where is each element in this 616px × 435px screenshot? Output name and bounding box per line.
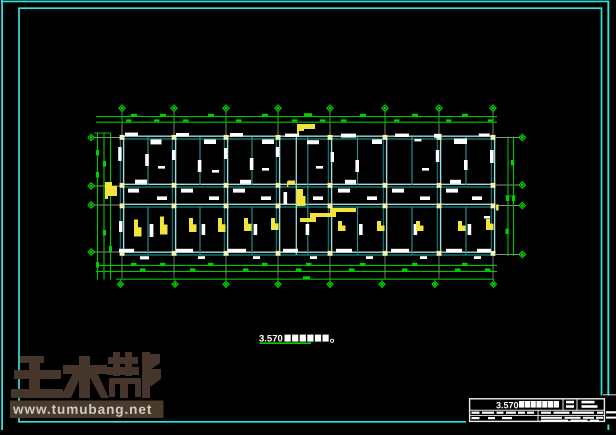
svg-text:3.570: 3.570 — [496, 400, 519, 410]
svg-text:www.tumubang.net: www.tumubang.net — [12, 402, 152, 417]
